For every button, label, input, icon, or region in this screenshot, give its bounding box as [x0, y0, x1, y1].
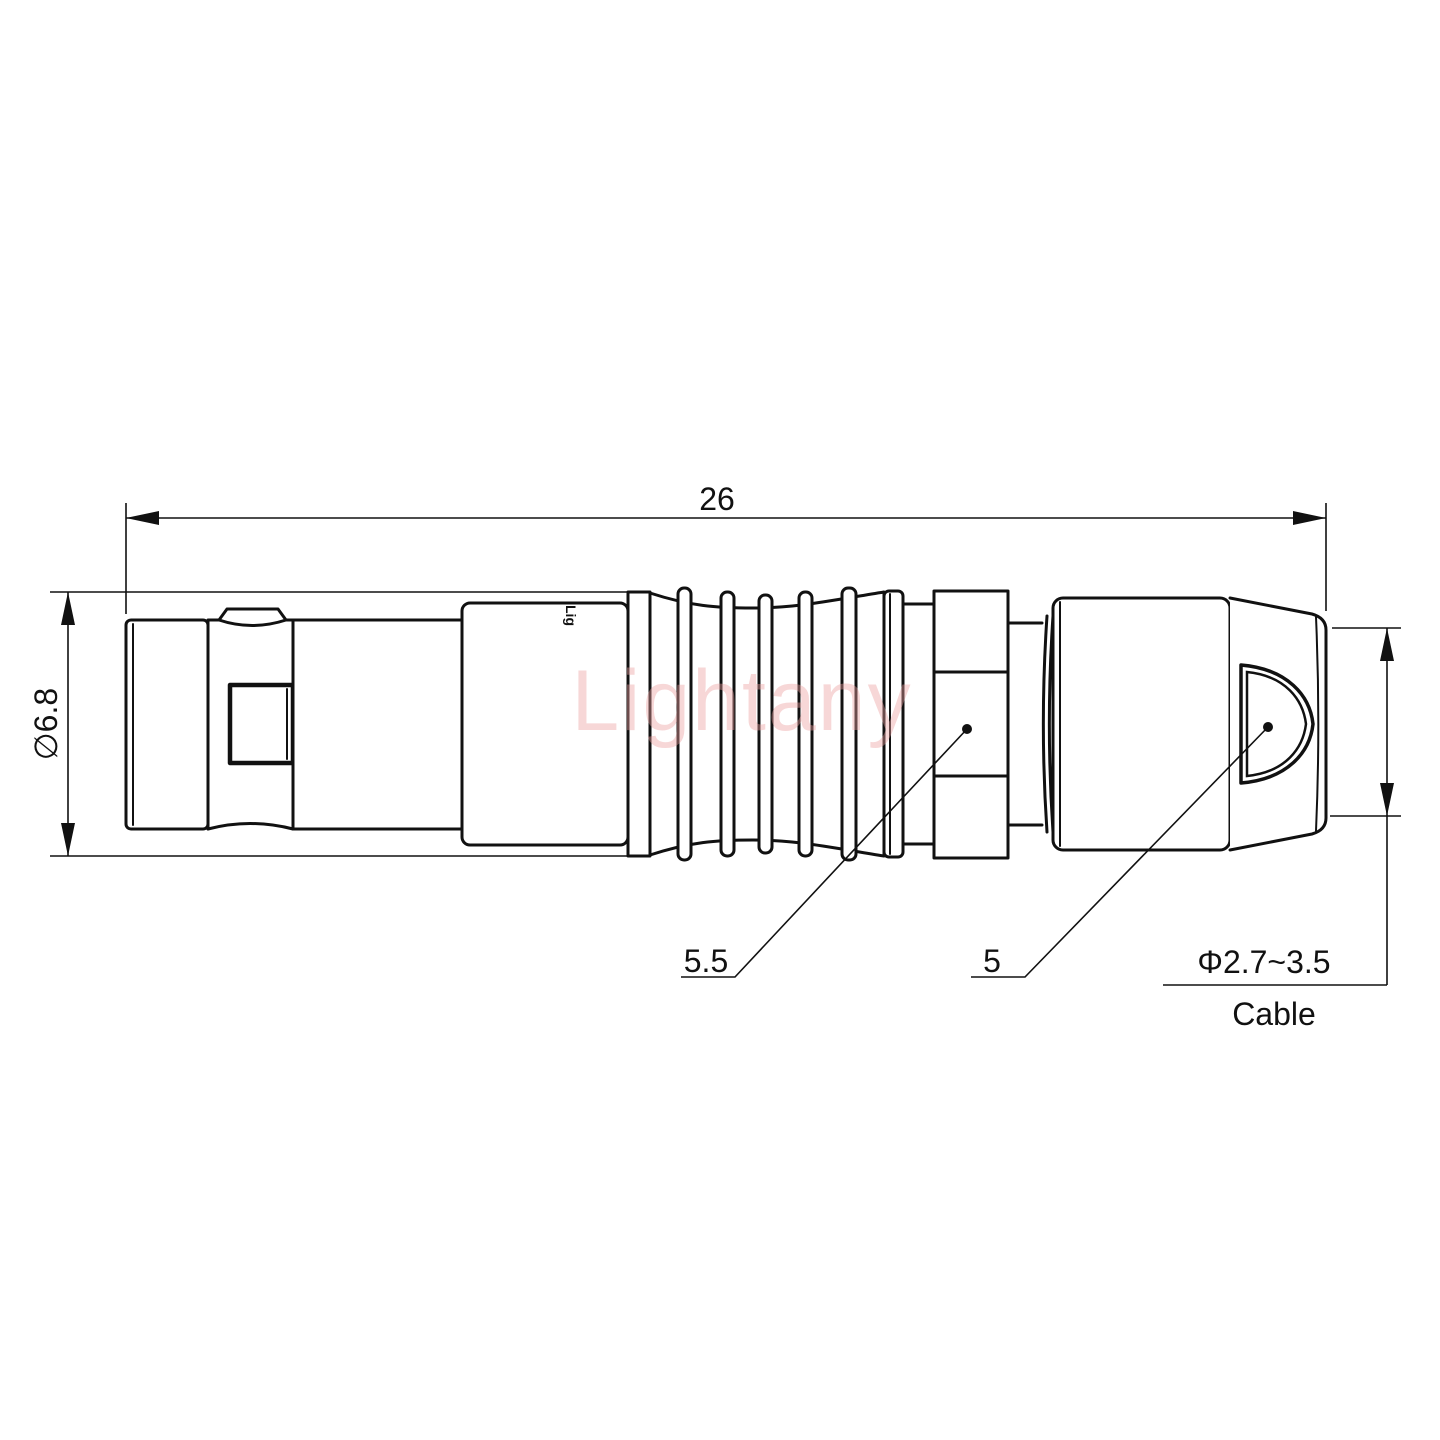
- arrowhead-cable-top: [1380, 628, 1394, 661]
- cable-label: Cable: [1232, 996, 1316, 1032]
- arrowhead-length-left: [126, 511, 159, 525]
- dim-text-boot-size: 5: [983, 943, 1001, 979]
- washer-front-line: [1043, 616, 1047, 832]
- release-sleeve: [293, 620, 462, 829]
- dim-text-cable-range: Φ2.7~3.5: [1197, 944, 1330, 980]
- dim-text-body-diameter: ∅6.8: [28, 688, 64, 760]
- dim-text-nut-size: 5.5: [684, 943, 728, 979]
- front-cap: [126, 620, 208, 829]
- latch-window: [230, 685, 293, 763]
- dim-text-overall-length: 26: [699, 481, 735, 517]
- arrowhead-length-right: [1293, 511, 1326, 525]
- neck-rear: [1008, 623, 1042, 825]
- key-bump: [219, 609, 286, 626]
- connector-technical-drawing: Lightany Lig 26 ∅6.8 5.5 5 Φ2.7~3.5: [0, 0, 1440, 1440]
- hex-nut: [934, 591, 1008, 858]
- arrowhead-diameter-top: [61, 592, 75, 625]
- latch-bottom-arc: [208, 824, 293, 830]
- barrel-logo-text: Lig: [563, 605, 579, 626]
- arrowhead-diameter-bottom: [61, 823, 75, 856]
- rear-boot: [1053, 598, 1230, 850]
- arrowhead-cable-bottom: [1380, 783, 1394, 816]
- drawing-canvas: Lightany Lig 26 ∅6.8 5.5 5 Φ2.7~3.5: [0, 0, 1440, 1440]
- watermark-text: Lightany: [571, 653, 912, 749]
